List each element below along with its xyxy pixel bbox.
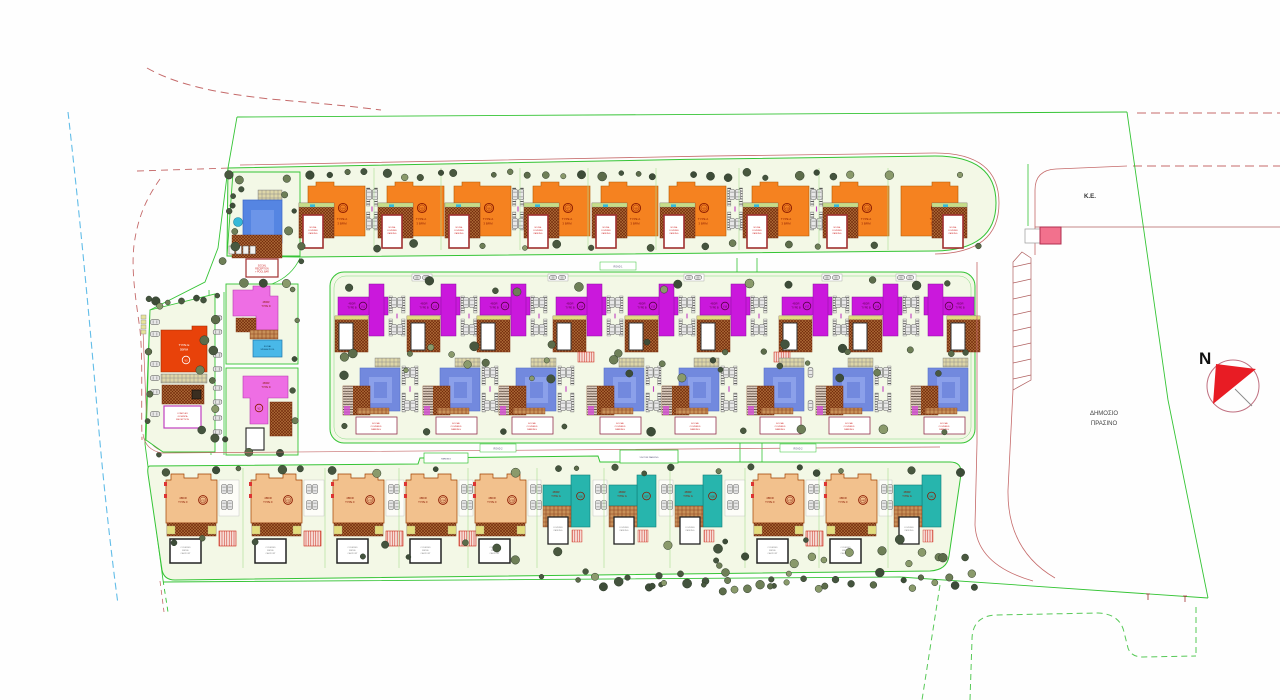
svg-text:TYPE F: TYPE F — [487, 500, 497, 504]
svg-text:TYPE F: TYPE F — [838, 500, 848, 504]
svg-text:SOCIAL: SOCIAL — [753, 226, 761, 229]
svg-text:COVERED: COVERED — [690, 426, 701, 428]
svg-text:TYPE B: TYPE B — [861, 305, 870, 309]
svg-text:PARKING: PARKING — [371, 428, 381, 431]
svg-text:ΔΗΜΟΣΙΟ: ΔΗΜΟΣΙΟ — [1090, 411, 1118, 417]
svg-text:SOCIAL: SOCIAL — [949, 226, 957, 229]
svg-text:4BDR: 4BDR — [793, 302, 800, 306]
svg-text:V5: V5 — [420, 206, 424, 210]
svg-text:COVERED: COVERED — [347, 547, 358, 549]
svg-text:SOCIAL: SOCIAL — [452, 422, 461, 425]
svg-text:TYPE B: TYPE B — [419, 305, 428, 309]
svg-text:V36: V36 — [578, 495, 583, 498]
svg-text:4BDR: 4BDR — [904, 490, 911, 494]
svg-text:SOCIAL: SOCIAL — [845, 422, 854, 425]
svg-text:V13: V13 — [503, 305, 508, 308]
svg-text:CARPORT: CARPORT — [767, 552, 778, 555]
svg-text:METAL: METAL — [769, 549, 777, 552]
svg-text:COVERED: COVERED — [904, 527, 914, 529]
svg-text:4BDR: 4BDR — [619, 490, 626, 494]
svg-text:5BRM: 5BRM — [180, 347, 189, 351]
svg-text:TYPE A: TYPE A — [698, 217, 709, 221]
svg-text:PARKING: PARKING — [309, 232, 318, 235]
svg-text:PARKING: PARKING — [753, 232, 762, 235]
svg-text:4BDR: 4BDR — [491, 302, 498, 306]
svg-text:GYM/SPA: GYM/SPA — [178, 415, 188, 418]
svg-text:TYPE B: TYPE B — [791, 305, 800, 309]
svg-text:METAL: METAL — [267, 549, 275, 552]
svg-text:4BDR: 4BDR — [567, 302, 574, 306]
svg-text:V8: V8 — [634, 206, 638, 210]
svg-text:TYPE A: TYPE A — [416, 217, 427, 221]
svg-text:SOCIAL: SOCIAL — [940, 422, 949, 425]
svg-text:COVERED: COVERED — [533, 230, 543, 232]
svg-text:TYPE G: TYPE G — [902, 494, 912, 498]
svg-text:TYPE B: TYPE B — [955, 305, 964, 309]
svg-text:RECEPTION: RECEPTION — [255, 269, 269, 271]
svg-text:SOCIAL: SOCIAL — [388, 226, 396, 229]
svg-text:TYPE D: TYPE D — [261, 385, 270, 389]
svg-text:COVERED: COVERED — [454, 230, 464, 232]
svg-text:3 BRM: 3 BRM — [861, 221, 871, 225]
svg-text:TYPE B: TYPE B — [347, 305, 356, 309]
svg-text:COVERED: COVERED — [420, 547, 431, 549]
svg-text:PARKING: PARKING — [455, 232, 464, 235]
svg-text:COVERED: COVERED — [553, 527, 563, 529]
svg-text:3 BRM: 3 BRM — [781, 221, 791, 225]
svg-text:V34: V34 — [441, 499, 446, 502]
svg-text:SOCIAL: SOCIAL — [670, 226, 678, 229]
svg-text:V33: V33 — [368, 499, 373, 502]
svg-text:4BDR: 4BDR — [263, 300, 270, 304]
svg-text:3 BRM: 3 BRM — [337, 221, 347, 225]
svg-text:ΠΡΑΣΙΝΟ: ΠΡΑΣΙΝΟ — [1091, 421, 1118, 427]
svg-text:METAL: METAL — [422, 549, 430, 552]
svg-text:V6: V6 — [487, 206, 491, 210]
svg-text:COVERED: COVERED — [180, 547, 191, 549]
svg-text:V7: V7 — [566, 206, 570, 210]
svg-text:V11: V11 — [865, 206, 870, 210]
svg-text:COVERED: COVERED — [752, 230, 762, 232]
svg-text:4BDR: 4BDR — [711, 302, 718, 306]
svg-text:PARKING: PARKING — [441, 458, 451, 461]
svg-text:TYPE A: TYPE A — [630, 217, 641, 221]
svg-text:PARKING: PARKING — [534, 232, 543, 235]
svg-text:COVERED: COVERED — [775, 426, 786, 428]
svg-text:TYPE B: TYPE B — [709, 305, 718, 309]
svg-text:3 BRM: 3 BRM — [698, 221, 708, 225]
svg-text:V16: V16 — [723, 305, 728, 308]
svg-text:V9: V9 — [702, 206, 706, 210]
svg-text:TYPE A: TYPE A — [337, 217, 348, 221]
svg-text:TYPE G: TYPE G — [617, 494, 627, 498]
svg-text:SOCIAL: SOCIAL — [833, 226, 841, 229]
svg-text:3 BRM: 3 BRM — [562, 221, 572, 225]
svg-text:V14: V14 — [579, 305, 584, 308]
svg-text:COVERED: COVERED — [832, 230, 842, 232]
svg-text:3 BRM: 3 BRM — [483, 221, 493, 225]
svg-text:N: N — [1199, 349, 1211, 368]
svg-text:4BDR: 4BDR — [639, 302, 646, 306]
svg-text:CARPORT: CARPORT — [265, 552, 276, 555]
svg-text:TYPE B: TYPE B — [637, 305, 646, 309]
svg-text:TYPE E: TYPE E — [179, 343, 190, 347]
svg-text:TYPE A: TYPE A — [562, 217, 573, 221]
svg-text:PARKING: PARKING — [388, 232, 397, 235]
svg-text:COVERED: COVERED — [265, 547, 276, 549]
svg-text:SOCIAL: SOCIAL — [372, 422, 381, 425]
svg-text:+ POOL BAR: + POOL BAR — [255, 271, 269, 274]
svg-text:CARPORT: CARPORT — [489, 552, 500, 555]
svg-text:TYPE G: TYPE G — [683, 494, 693, 498]
svg-text:4BDR: 4BDR — [421, 302, 428, 306]
svg-text:COVERED: COVERED — [669, 230, 679, 232]
svg-text:PARKING: PARKING — [775, 428, 785, 431]
svg-text:CARPORT: CARPORT — [420, 552, 431, 555]
svg-text:TYPE G: TYPE G — [551, 494, 561, 498]
svg-text:COVERED: COVERED — [844, 426, 855, 428]
svg-text:COVERED: COVERED — [767, 547, 778, 549]
svg-text:ROAD 2: ROAD 2 — [794, 448, 804, 451]
svg-text:V12: V12 — [433, 305, 438, 308]
svg-text:PARKING: PARKING — [833, 232, 842, 235]
svg-text:TYPE F: TYPE F — [418, 500, 428, 504]
svg-text:PARKING: PARKING — [670, 232, 679, 235]
svg-text:COVERED: COVERED — [615, 426, 626, 428]
svg-text:SPLASH POOL: SPLASH POOL — [260, 348, 275, 351]
svg-text:3 BRM: 3 BRM — [630, 221, 640, 225]
svg-text:V38: V38 — [710, 495, 715, 498]
svg-text:COVERED: COVERED — [619, 527, 629, 529]
svg-text:4BDR: 4BDR — [263, 381, 270, 385]
svg-text:METAL: METAL — [349, 549, 357, 552]
svg-text:V32: V32 — [286, 499, 291, 502]
svg-text:4BDR: 4BDR — [863, 302, 870, 306]
svg-text:V18: V18 — [875, 305, 880, 308]
svg-text:V40: V40 — [861, 499, 866, 502]
svg-text:SOCIAL: SOCIAL — [258, 265, 267, 268]
svg-text:TYPE A: TYPE A — [483, 217, 494, 221]
svg-text:PARKING: PARKING — [602, 232, 611, 235]
svg-text:V37: V37 — [644, 495, 649, 498]
svg-text:TYPE B: TYPE B — [565, 305, 574, 309]
svg-text:ROAD 2: ROAD 2 — [494, 448, 504, 451]
svg-text:PARKING: PARKING — [686, 529, 695, 532]
svg-text:ROAD 1: ROAD 1 — [614, 266, 624, 269]
svg-text:PARKING: PARKING — [615, 428, 625, 431]
svg-text:V31: V31 — [201, 499, 206, 502]
svg-text:COVERED: COVERED — [371, 426, 382, 428]
svg-text:4BDR: 4BDR — [349, 302, 356, 306]
svg-text:SOCIAL: SOCIAL — [534, 226, 542, 229]
svg-text:PARKING: PARKING — [554, 529, 563, 532]
svg-text:4BDR: 4BDR — [553, 490, 560, 494]
svg-text:TYPE F: TYPE F — [765, 500, 775, 504]
svg-text:METAL: METAL — [182, 549, 190, 552]
svg-text:PARKING: PARKING — [690, 428, 700, 431]
svg-text:PARKING: PARKING — [451, 428, 461, 431]
svg-text:4BDR: 4BDR — [685, 490, 692, 494]
svg-text:COVERED: COVERED — [451, 426, 462, 428]
svg-text:V39: V39 — [788, 499, 793, 502]
svg-text:PARKING: PARKING — [949, 232, 958, 235]
svg-text:SOCIAL: SOCIAL — [602, 226, 610, 229]
svg-text:TYPE B: TYPE B — [489, 305, 498, 309]
svg-text:V41: V41 — [929, 495, 934, 498]
svg-text:PARKING: PARKING — [620, 529, 629, 532]
svg-text:COVERED: COVERED — [601, 230, 611, 232]
svg-text:CARPORT: CARPORT — [180, 552, 191, 555]
svg-text:PARKING: PARKING — [844, 428, 854, 431]
svg-text:TYPE A: TYPE A — [781, 217, 792, 221]
svg-text:V15: V15 — [651, 305, 656, 308]
svg-text:Κ.Ε.: Κ.Ε. — [1084, 193, 1096, 200]
svg-text:SOCIAL: SOCIAL — [455, 226, 463, 229]
svg-text:4BDR: 4BDR — [957, 302, 964, 306]
svg-text:SOCIAL: SOCIAL — [309, 226, 317, 229]
svg-text:V10: V10 — [785, 206, 790, 210]
svg-text:3 BRM: 3 BRM — [416, 221, 426, 225]
svg-text:COVERED: COVERED — [308, 230, 318, 232]
svg-text:SOCIAL: SOCIAL — [691, 422, 700, 425]
svg-text:TYPE F: TYPE F — [345, 500, 355, 504]
svg-text:V4: V4 — [341, 206, 345, 210]
svg-text:SOCIAL: SOCIAL — [776, 422, 785, 425]
svg-text:PARKING: PARKING — [905, 529, 914, 532]
svg-text:TYPE F: TYPE F — [178, 500, 188, 504]
svg-text:V17: V17 — [805, 305, 810, 308]
svg-text:TYPE D: TYPE D — [261, 304, 270, 308]
svg-text:VISITOR PARKING: VISITOR PARKING — [639, 456, 658, 459]
svg-text:COMPLEX: COMPLEX — [177, 413, 188, 415]
svg-text:COVERED: COVERED — [948, 230, 958, 232]
svg-text:COVERED: COVERED — [939, 426, 950, 428]
svg-text:COVERED: COVERED — [527, 426, 538, 428]
svg-text:SOCIAL: SOCIAL — [264, 345, 272, 348]
svg-text:PARKING: PARKING — [527, 428, 537, 431]
svg-text:V11: V11 — [361, 305, 366, 308]
svg-text:RECEPTION: RECEPTION — [176, 419, 189, 421]
svg-text:V19: V19 — [947, 305, 952, 308]
svg-text:SOCIAL: SOCIAL — [528, 422, 537, 425]
svg-text:TYPE F: TYPE F — [263, 500, 273, 504]
svg-text:COVERED: COVERED — [387, 230, 397, 232]
svg-text:COVERED: COVERED — [685, 527, 695, 529]
svg-text:SOCIAL: SOCIAL — [616, 422, 625, 425]
svg-text:V35: V35 — [510, 499, 515, 502]
svg-text:CARPORT: CARPORT — [347, 552, 358, 555]
svg-text:TYPE A: TYPE A — [861, 217, 872, 221]
